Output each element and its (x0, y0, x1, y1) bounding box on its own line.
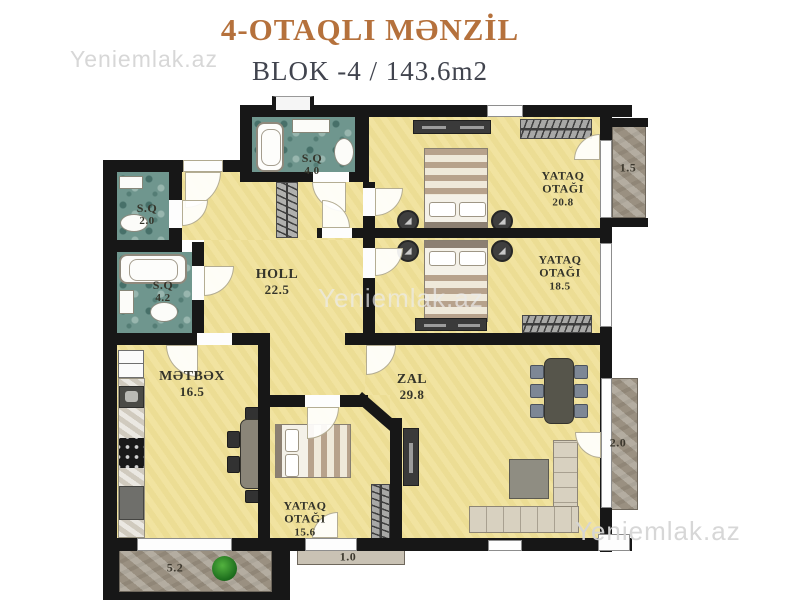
entrance-opening (183, 160, 223, 172)
window (598, 534, 630, 551)
cabinet (119, 486, 144, 520)
room-label-sq20: S.Q2.0 (137, 184, 158, 228)
chair (574, 384, 588, 398)
bathtub (256, 122, 284, 172)
balcony-bottom-left (119, 548, 272, 592)
wall (345, 333, 367, 345)
stove (119, 438, 144, 468)
room-label-bedroom1: YATAQ OTAĞI20.8 (528, 151, 598, 208)
floorplan: S.Q4.0 S.Q2.0 S.Q4.2 HOLL22.5 YATAQ OTAĞ… (0, 0, 800, 600)
wardrobe (371, 484, 390, 540)
balcony-label-bottom: 1.0 (340, 550, 357, 563)
chair (530, 404, 544, 418)
coat-rack (276, 182, 298, 238)
wall (272, 538, 290, 600)
toilet (150, 302, 178, 322)
toilet (334, 138, 354, 166)
door-opening (305, 395, 340, 407)
room-label-kitchen: MƏTBƏX16.5 (159, 351, 225, 399)
room-label-zal: ZAL29.8 (397, 354, 427, 402)
wall (103, 240, 181, 252)
door-opening (322, 228, 352, 238)
bed (424, 240, 488, 322)
kitchen-sink (119, 386, 144, 408)
wall (600, 118, 648, 127)
bed (424, 148, 488, 230)
balcony-label-bottom-left: 5.2 (167, 561, 184, 574)
room-label-holl: HOLL22.5 (256, 249, 298, 297)
wardrobe (520, 119, 592, 139)
wall (103, 160, 117, 550)
dining-table (544, 358, 574, 424)
wall (258, 335, 270, 543)
window-balcony-1 (600, 140, 612, 218)
door-opening (192, 266, 204, 300)
plant (212, 556, 237, 581)
wall (363, 333, 612, 345)
wall (355, 105, 369, 182)
room-label-bedroom2: YATAQ OTAĞI18.5 (525, 235, 595, 292)
balcony-label-top-right: 1.5 (620, 161, 637, 174)
door-opening (169, 200, 182, 228)
chair (227, 431, 240, 448)
wall (600, 218, 648, 227)
chair (574, 365, 588, 379)
wall (103, 333, 204, 345)
door-opening (363, 188, 375, 216)
nightstand (491, 240, 513, 262)
fridge (118, 350, 144, 378)
wall (103, 592, 290, 600)
window (600, 243, 612, 327)
wall (390, 418, 402, 543)
room-label-sq40: S.Q4.0 (302, 134, 323, 178)
vent-shaft (272, 96, 314, 110)
chair (574, 404, 588, 418)
coffee-table (509, 459, 549, 499)
sofa (469, 506, 579, 533)
door-opening (363, 248, 375, 278)
chair (227, 456, 240, 473)
window (487, 105, 523, 117)
chair (530, 365, 544, 379)
room-label-bedroom3: YATAQ OTAĞI15.6 (270, 481, 340, 538)
chair (530, 384, 544, 398)
sink (119, 290, 134, 314)
floorplan-page: { "header": { "title": "4-OTAQLI MƏNZİL"… (0, 0, 800, 600)
wardrobe (522, 315, 592, 333)
window-balcony-4 (137, 538, 232, 551)
room-holl-corridor (270, 340, 365, 398)
tv-console (413, 120, 491, 134)
room-label-sq42: S.Q4.2 (153, 261, 174, 305)
balcony-label-right: 2.0 (610, 436, 627, 449)
window (488, 540, 522, 551)
sink (292, 119, 330, 133)
door-opening (197, 333, 232, 345)
tv-console (415, 318, 487, 331)
tv-console (403, 428, 419, 486)
